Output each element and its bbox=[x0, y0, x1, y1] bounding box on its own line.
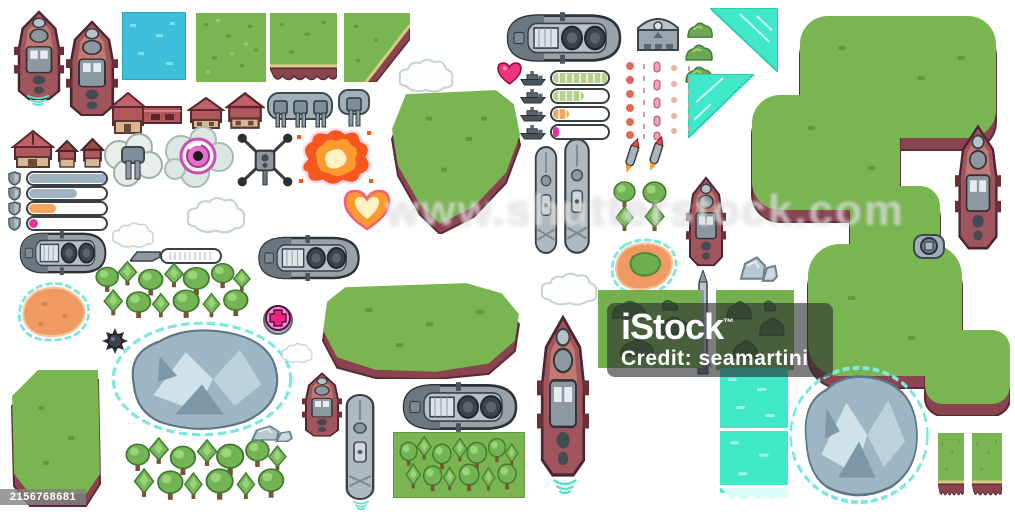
cloud-2 bbox=[110, 221, 156, 249]
ship-icon bbox=[520, 89, 546, 104]
battleship-gray-top bbox=[494, 10, 634, 66]
cyan-falls-tile bbox=[720, 431, 788, 501]
cloud-4 bbox=[538, 271, 600, 307]
ship-icon bbox=[520, 125, 546, 140]
trademark-symbol: ™ bbox=[723, 317, 733, 329]
health-bar-fill bbox=[553, 73, 609, 83]
ship-wake-3 bbox=[348, 500, 374, 511]
ship-icon bbox=[520, 107, 546, 122]
health-bar-4 bbox=[520, 124, 610, 140]
rocks-pair bbox=[737, 251, 779, 285]
submarine-vertical-3 bbox=[342, 392, 378, 502]
health-bar-track bbox=[550, 106, 610, 122]
battleship-red-vertical-large bbox=[537, 314, 589, 480]
shield-bar-track bbox=[26, 216, 108, 231]
barn-house bbox=[11, 129, 55, 169]
warship-red-vertical-1 bbox=[14, 10, 64, 102]
cloud-small bbox=[280, 342, 314, 364]
turret-single bbox=[335, 86, 373, 130]
cliff-strip-1 bbox=[938, 433, 964, 497]
health-bar-fill bbox=[553, 109, 569, 119]
warship-red-vertical-right bbox=[955, 124, 1001, 252]
shield-bar-2 bbox=[8, 186, 108, 201]
shield-icon bbox=[8, 201, 21, 216]
istock-watermark-box: iStock™ Credit: seamartini bbox=[607, 303, 833, 377]
ship-wake-2 bbox=[546, 478, 584, 496]
hut-1 bbox=[55, 139, 79, 169]
turret-in-smoke bbox=[101, 131, 165, 189]
health-bar-1 bbox=[520, 70, 610, 86]
sprite-sheet-canvas: www.shutterstock.com iStock™ Credit: sea… bbox=[0, 0, 1015, 516]
health-bar-3 bbox=[520, 106, 610, 122]
magenta-orb-cloud bbox=[161, 125, 235, 189]
tree-cluster-bottom bbox=[122, 436, 290, 502]
rocket-pair bbox=[618, 136, 670, 178]
ship-icon bbox=[520, 71, 546, 86]
shield-bar-fill bbox=[29, 219, 38, 228]
shield-icon bbox=[8, 186, 21, 201]
image-id-label: 2156768681 bbox=[0, 489, 86, 505]
garage-building bbox=[636, 14, 680, 52]
cyan-tile bbox=[720, 368, 788, 428]
grass-cliff-tile bbox=[270, 13, 337, 82]
istock-logo: iStock™ bbox=[621, 309, 833, 345]
battleship-gray-bottom bbox=[390, 380, 530, 434]
rocks-small bbox=[248, 422, 294, 444]
cloud-1 bbox=[184, 195, 248, 235]
boat-red-small bbox=[302, 372, 342, 438]
shield-bar-4 bbox=[8, 216, 108, 231]
shield-bar-track bbox=[26, 186, 108, 201]
health-bar-fill bbox=[553, 91, 584, 101]
health-bar-fill bbox=[553, 127, 559, 137]
buoy-turret bbox=[912, 232, 946, 260]
mountain-bottom-right bbox=[788, 364, 930, 506]
battleship-gray-mid bbox=[247, 233, 371, 283]
health-bar-track bbox=[550, 124, 610, 140]
istock-credit: Credit: seamartini bbox=[621, 347, 833, 371]
cloud-3 bbox=[396, 57, 456, 94]
shield-bar-fill bbox=[29, 174, 107, 183]
health-bar-track bbox=[550, 70, 610, 86]
explosion-large bbox=[293, 125, 375, 189]
mountain-lake bbox=[110, 320, 294, 438]
tree-cluster-mid bbox=[92, 260, 254, 320]
water-tile bbox=[122, 12, 186, 80]
grass-tile bbox=[196, 13, 266, 82]
waterfall-triangle-1 bbox=[710, 8, 778, 72]
shield-bar-3 bbox=[8, 201, 108, 216]
health-bar-2 bbox=[520, 88, 610, 104]
trees-on-grass-tile bbox=[393, 432, 525, 498]
island-bottom-left bbox=[8, 366, 104, 508]
drone bbox=[235, 131, 295, 189]
shield-bar-1 bbox=[8, 171, 108, 186]
shield-icon bbox=[8, 216, 21, 231]
shield-bar-track bbox=[26, 171, 108, 186]
shield-bar-fill bbox=[29, 204, 56, 213]
health-bar-track bbox=[550, 88, 610, 104]
island-center bbox=[315, 281, 527, 379]
shield-bar-track bbox=[26, 201, 108, 216]
health-heart-icon bbox=[497, 62, 522, 85]
ship-wake bbox=[20, 94, 56, 107]
projectile-trails bbox=[622, 60, 700, 140]
orange-island-blob bbox=[12, 280, 98, 344]
shield-icon bbox=[8, 171, 21, 186]
island-orange-beach bbox=[607, 237, 681, 297]
ghost-watermark-text: www.shutterstock.com bbox=[385, 186, 855, 238]
shield-bar-fill bbox=[29, 189, 77, 198]
cliff-strip-2 bbox=[972, 433, 1002, 497]
